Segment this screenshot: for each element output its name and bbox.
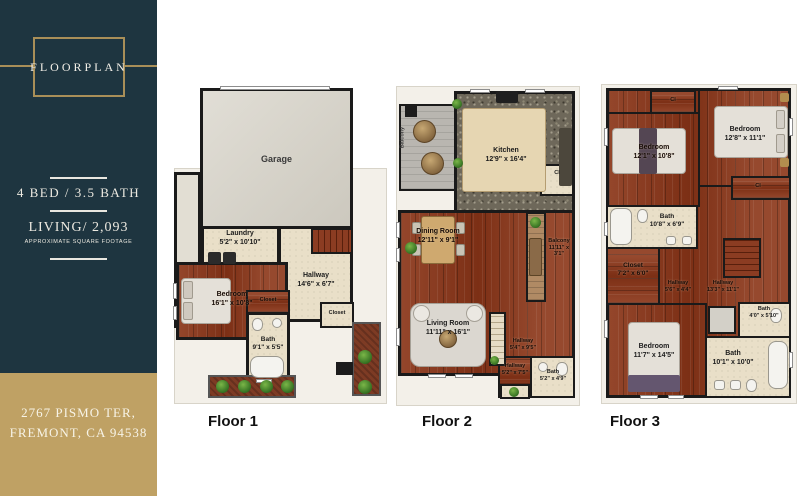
sink-icon <box>682 236 692 245</box>
floor3-hallway-small-label: Hallway 5'6" x 4'4" <box>660 280 696 293</box>
window <box>789 352 793 368</box>
room-dims: 5'6" x 4'4" <box>660 287 696 294</box>
room-dims: 14'6" x 6'7" <box>281 281 351 290</box>
divider <box>50 258 107 260</box>
room-name: Bath <box>708 350 758 359</box>
floor1-laundry-label: Laundry 5'2" x 10'10" <box>203 230 277 248</box>
bush-icon <box>358 380 372 394</box>
room-dims: 5'2" x 7'5" <box>496 370 534 377</box>
floor2-closet-label: Cl <box>542 170 572 177</box>
bush-icon <box>260 380 273 393</box>
address-line-1: 2767 PISMO TER, <box>0 405 157 421</box>
bush-icon <box>238 380 251 393</box>
window <box>640 395 658 399</box>
room-name: Hallway <box>700 280 746 287</box>
room-dims: 12'9" x 16'4" <box>459 156 553 165</box>
floor2-hallway1-label: Hallway 5'4" x 9'5" <box>502 338 544 351</box>
living-area-subtext: APPROXIMATE SQUARE FOOTAGE <box>0 239 157 245</box>
sink-icon <box>714 380 725 390</box>
window <box>525 89 545 93</box>
window <box>455 374 473 378</box>
divider <box>50 177 107 179</box>
divider <box>50 210 107 212</box>
room-garage: Garage <box>200 88 353 230</box>
window <box>604 128 608 146</box>
window <box>173 306 177 320</box>
floor2-bath-label: Bath 5'2" x 4'9" <box>533 369 573 382</box>
planter-icon <box>405 105 417 117</box>
floorplan-logo-text: FLOORPLAN <box>30 60 128 75</box>
bush-icon <box>358 350 372 364</box>
address-line-2: FREMONT, CA 94538 <box>0 425 157 441</box>
room-name: Balcony <box>400 138 407 148</box>
living-area-spec: LIVING/ 2,093 <box>0 220 157 236</box>
window <box>428 374 446 378</box>
room-dims: 11'11" x 3'1" <box>546 245 572 258</box>
washer-icon <box>208 252 221 264</box>
room-name: Hallway <box>502 338 544 345</box>
room-name: Cl <box>735 183 781 190</box>
bed-foot-chairs-icon <box>628 375 680 392</box>
shower-icon <box>708 306 736 334</box>
floor2-kitchen-label: Kitchen 12'9" x 16'4" <box>459 147 553 165</box>
window <box>604 222 608 236</box>
room-name: Laundry <box>203 230 277 239</box>
floor2-balcony-right-label: Balcony 11'11" x 3'1" <box>546 238 572 258</box>
address-block: 2767 PISMO TER, FREMONT, CA 94538 <box>0 373 157 496</box>
room-name: Bath <box>642 213 692 221</box>
planter-icon <box>336 362 353 375</box>
room-name: Closet <box>246 297 290 304</box>
room-name: Bedroom <box>626 343 682 352</box>
plant-icon <box>530 217 541 228</box>
floor3-closet-top-label: Cl <box>652 97 694 104</box>
dryer-icon <box>223 252 236 264</box>
window <box>668 395 684 399</box>
room-name: Kitchen <box>459 147 553 156</box>
stairs <box>723 238 761 278</box>
room-name: Balcony <box>546 238 572 245</box>
room-dims: 13'3" x 11'1" <box>700 287 746 294</box>
floor3-bedroom-bottom-label: Bedroom 11'7" x 14'5" <box>626 343 682 361</box>
bathtub-icon <box>250 356 284 378</box>
toilet-icon <box>746 379 757 392</box>
floor1-closet2-label: Closet <box>320 310 354 317</box>
sink-icon <box>272 318 282 328</box>
room-name: Bath <box>533 369 573 376</box>
floor3-bedroom-right-label: Bedroom 12'8" x 11'1" <box>702 126 788 144</box>
room-name: Living Room <box>409 320 487 329</box>
room-name: Bath <box>248 336 288 344</box>
floor3-bedroom-left-label: Bedroom 12'1" x 10'8" <box>610 144 698 162</box>
room-name: Bath <box>742 306 786 313</box>
patio-table-icon <box>421 152 444 175</box>
room-dims: 5'4" x 9'5" <box>502 345 544 352</box>
counter-icon <box>559 128 572 186</box>
floor1-bath-label: Bath 9'1" x 5'5" <box>248 336 288 352</box>
room-name: Closet <box>320 310 354 317</box>
window <box>396 248 400 262</box>
room-name: Bedroom <box>610 144 698 153</box>
room-dims: 10'8" x 6'9" <box>642 221 692 229</box>
bush-icon <box>216 380 229 393</box>
floor-2-label: Floor 2 <box>407 413 487 430</box>
bench-icon <box>529 238 542 276</box>
floor3-bath-bottom-label: Bath 10'1" x 10'0" <box>708 350 758 368</box>
room-balcony-left <box>399 104 456 191</box>
chair-icon <box>456 244 465 256</box>
room-dims: 7'2" x 6'0" <box>608 270 658 278</box>
plant-icon <box>452 99 462 109</box>
room-dims: 12'11" x 9'1" <box>400 237 476 246</box>
garage-door-opening <box>220 86 330 90</box>
floor1-closet1-label: Closet <box>246 297 290 304</box>
toilet-icon <box>252 318 263 331</box>
window <box>604 320 608 338</box>
floor2-dining-label: Dining Room 12'11" x 9'1" <box>400 228 476 246</box>
bathtub-icon <box>768 341 788 389</box>
flower-icon <box>509 387 519 397</box>
sink-icon <box>730 380 741 390</box>
patio-table-icon <box>413 120 436 143</box>
room-name: Garage <box>261 154 292 164</box>
floor-1-label: Floor 1 <box>193 413 273 430</box>
window <box>396 328 400 346</box>
floor2-hallway2-label: Hallway 5'2" x 7'5" <box>496 363 534 376</box>
stove-icon <box>496 91 518 103</box>
bed-bath-spec: 4 BED / 3.5 BATH <box>0 185 157 201</box>
floor2-balcony-left-label: Balcony <box>400 138 407 148</box>
floor1-hallway-label: Hallway 14'6" x 6'7" <box>281 272 351 290</box>
sink-icon <box>666 236 676 245</box>
room-name: Hallway <box>496 363 534 370</box>
window <box>470 89 490 93</box>
stairs <box>311 228 353 254</box>
bush-icon <box>281 380 294 393</box>
room-dims: 11'7" x 14'5" <box>626 352 682 361</box>
floor-3-label: Floor 3 <box>595 413 675 430</box>
room-name: Hallway <box>660 280 696 287</box>
room-name: Bedroom <box>702 126 788 135</box>
floor3-closet-right-label: Cl <box>735 183 781 190</box>
room-name: Cl <box>652 97 694 104</box>
window <box>789 118 793 136</box>
floor3-bath-top-label: Bath 10'8" x 6'9" <box>642 213 692 229</box>
room-dims: 5'2" x 4'9" <box>533 376 573 383</box>
room-dims: 12'1" x 10'8" <box>610 153 698 162</box>
room-name: Hallway <box>281 272 351 281</box>
window <box>173 283 177 299</box>
sidebar: FLOORPLAN 4 BED / 3.5 BATH LIVING/ 2,093… <box>0 0 157 373</box>
floor2-living-label: Living Room 11'11" x 16'1" <box>409 320 487 338</box>
floor3-hallway-large-label: Hallway 13'3" x 11'1" <box>700 280 746 293</box>
floor3-bath-small-label: Bath 4'0" x 5'10" <box>742 306 786 319</box>
bathtub-icon <box>610 208 632 245</box>
room-dims: 12'8" x 11'1" <box>702 135 788 144</box>
window <box>718 86 738 90</box>
nightstand-icon <box>780 158 789 167</box>
floorplan-sheet: FLOORPLAN 4 BED / 3.5 BATH LIVING/ 2,093… <box>0 0 800 496</box>
room-dims: 10'1" x 10'0" <box>708 359 758 368</box>
nightstand-icon <box>780 93 789 102</box>
room-name: Cl <box>542 170 572 177</box>
room-name: Dining Room <box>400 228 476 237</box>
room-dims: 9'1" x 5'5" <box>248 344 288 352</box>
room-dims: 4'0" x 5'10" <box>742 313 786 320</box>
room-dims: 5'2" x 10'10" <box>203 239 277 248</box>
room-dims: 11'11" x 16'1" <box>409 329 487 338</box>
floorplan-logo-box: FLOORPLAN <box>33 37 125 97</box>
floor3-closet-label: Closet 7'2" x 6'0" <box>608 262 658 278</box>
room-name: Closet <box>608 262 658 270</box>
